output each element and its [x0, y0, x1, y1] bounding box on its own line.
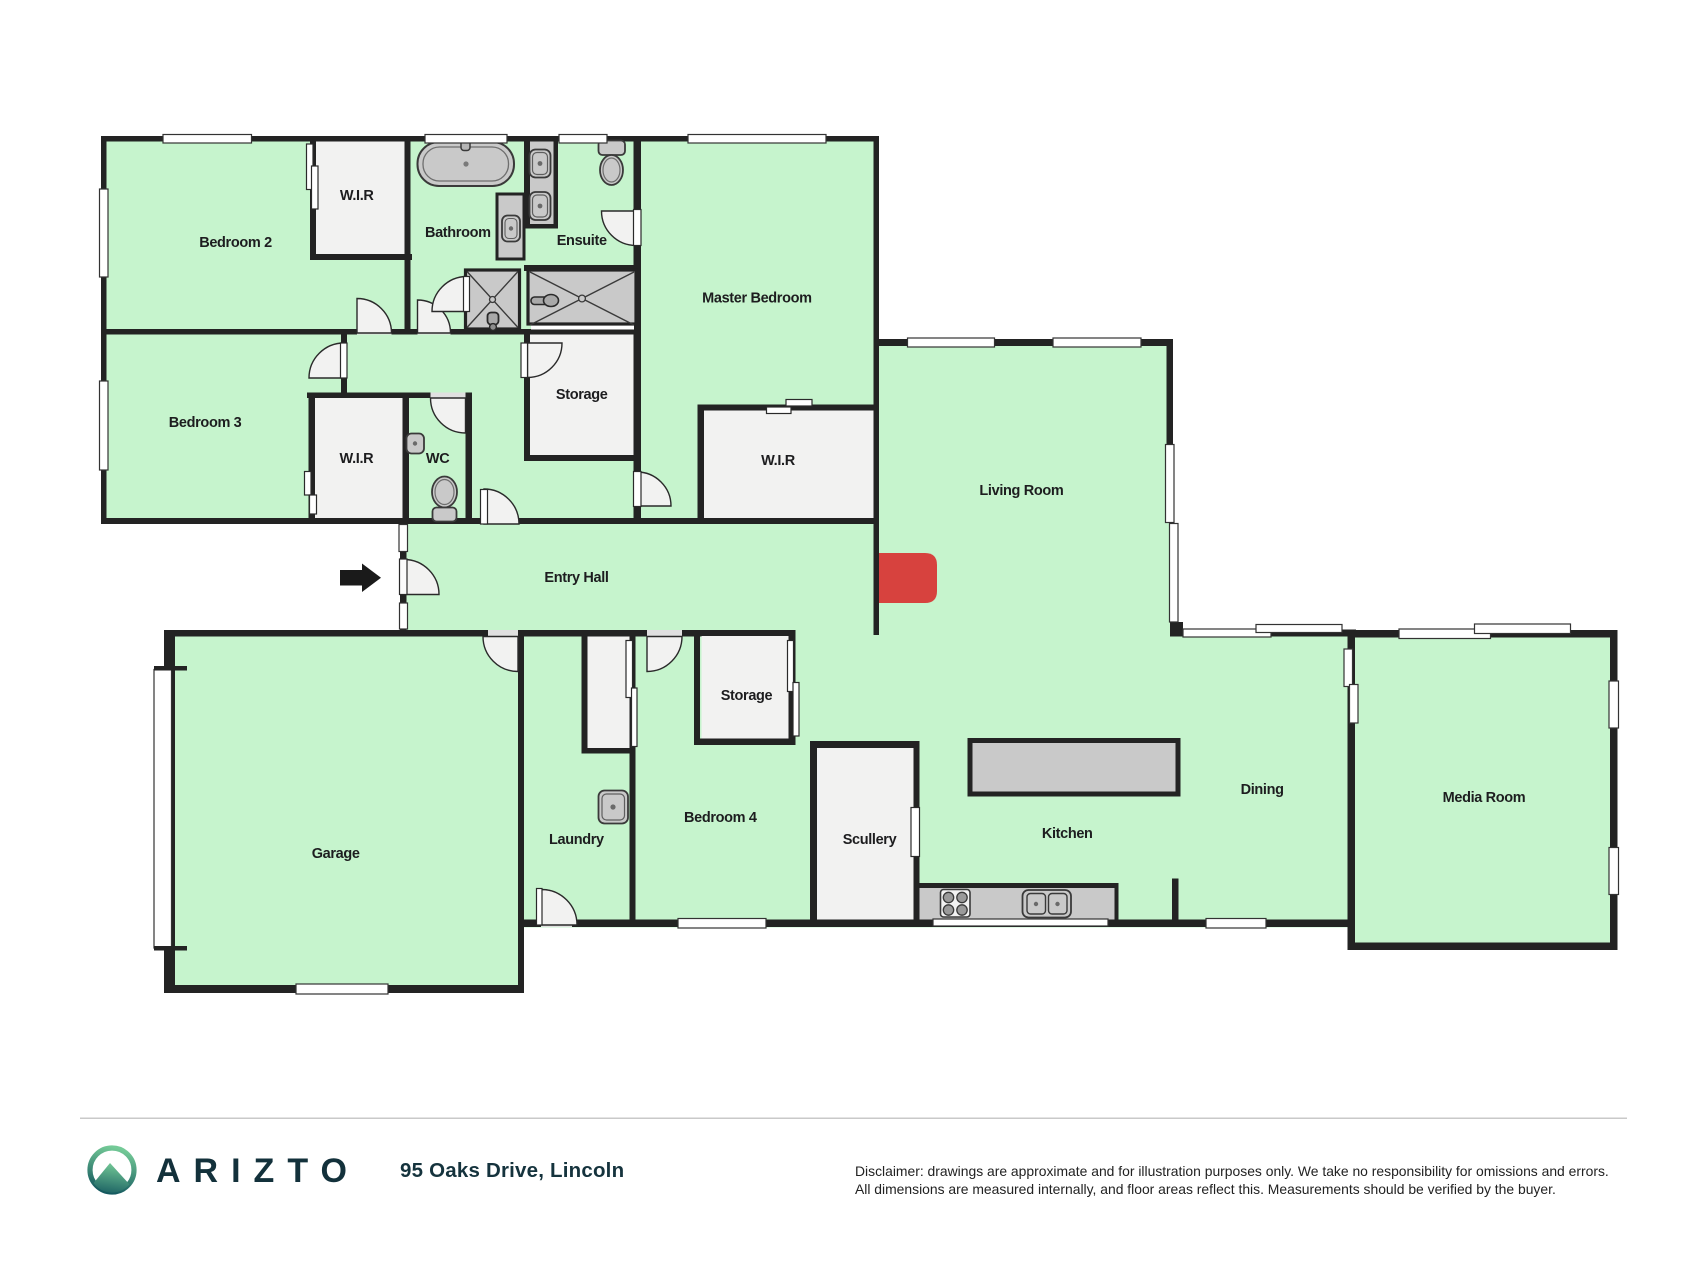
- svg-text:Media Room: Media Room: [1443, 790, 1526, 806]
- svg-text:Scullery: Scullery: [843, 832, 897, 848]
- svg-text:Dining: Dining: [1241, 782, 1284, 798]
- svg-text:Bedroom 4: Bedroom 4: [684, 810, 757, 826]
- svg-text:Laundry: Laundry: [549, 832, 604, 848]
- svg-text:ARIZTO: ARIZTO: [156, 1152, 360, 1190]
- svg-text:Living Room: Living Room: [979, 483, 1063, 499]
- svg-text:Storage: Storage: [556, 387, 608, 403]
- svg-text:Disclaimer: drawings are appro: Disclaimer: drawings are approximate and…: [855, 1163, 1609, 1179]
- svg-text:WC: WC: [426, 451, 450, 467]
- svg-text:Storage: Storage: [721, 688, 773, 704]
- svg-text:W.I.R: W.I.R: [761, 453, 796, 469]
- svg-text:Entry Hall: Entry Hall: [544, 570, 608, 586]
- svg-text:Garage: Garage: [312, 846, 360, 862]
- svg-text:Bathroom: Bathroom: [425, 225, 491, 241]
- svg-text:W.I.R: W.I.R: [340, 188, 375, 204]
- svg-text:Kitchen: Kitchen: [1042, 826, 1093, 842]
- svg-text:Bedroom 3: Bedroom 3: [169, 415, 242, 431]
- svg-text:W.I.R: W.I.R: [340, 451, 375, 467]
- svg-text:Bedroom 2: Bedroom 2: [199, 235, 272, 251]
- svg-text:Ensuite: Ensuite: [557, 233, 607, 249]
- svg-text:Master Bedroom: Master Bedroom: [702, 291, 812, 307]
- svg-text:All dimensions are measured in: All dimensions are measured internally, …: [855, 1181, 1556, 1197]
- svg-text:95 Oaks Drive, Lincoln: 95 Oaks Drive, Lincoln: [400, 1159, 624, 1182]
